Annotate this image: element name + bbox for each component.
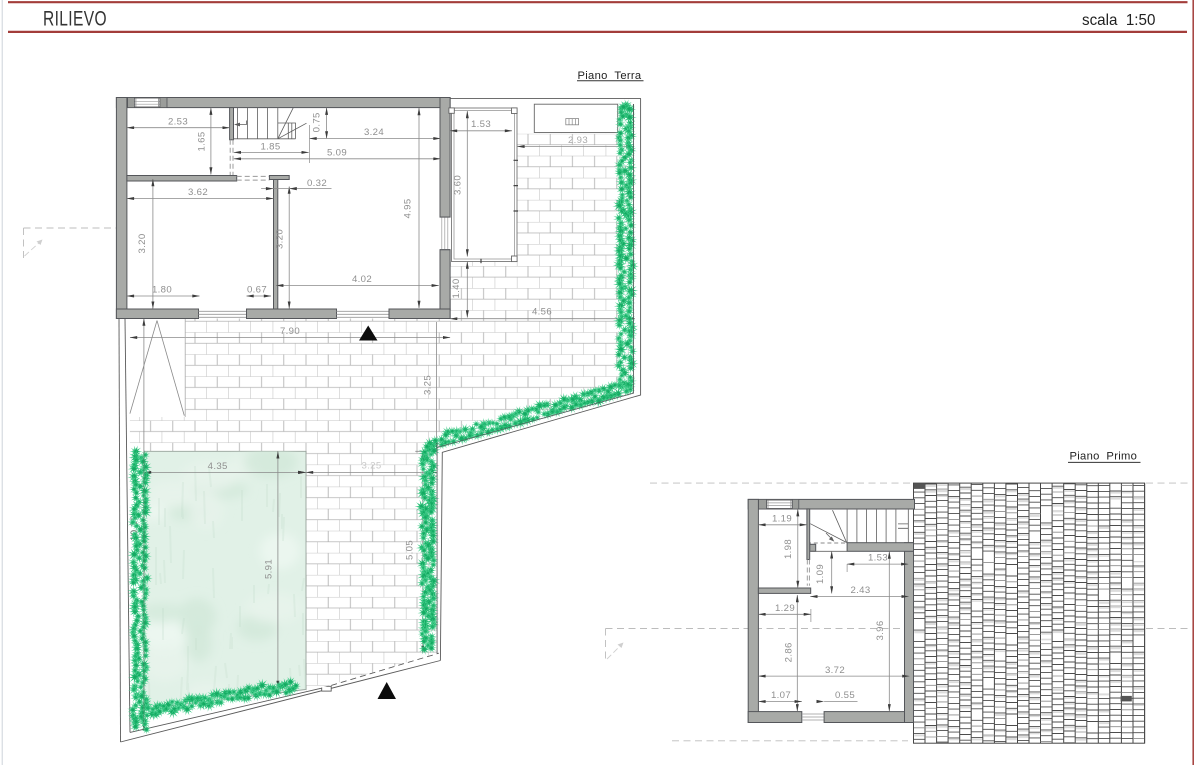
svg-text:scala 1:50: scala 1:50 [1082, 12, 1155, 29]
svg-text:Piano Primo: Piano Primo [1070, 450, 1138, 462]
svg-text:2.86: 2.86 [783, 642, 794, 662]
svg-text:1.80: 1.80 [152, 285, 172, 296]
svg-text:1.65: 1.65 [197, 131, 208, 151]
svg-text:3.62: 3.62 [188, 187, 208, 198]
svg-text:1.53: 1.53 [471, 119, 491, 130]
svg-text:3.20: 3.20 [137, 233, 148, 253]
svg-text:4.56: 4.56 [532, 307, 552, 318]
svg-text:1.07: 1.07 [771, 690, 791, 701]
svg-text:3.25: 3.25 [361, 460, 381, 471]
svg-text:3.72: 3.72 [825, 665, 845, 676]
svg-text:3.25: 3.25 [423, 375, 434, 395]
svg-text:1.98: 1.98 [783, 539, 794, 559]
svg-text:3.24: 3.24 [364, 127, 384, 138]
svg-text:5.91: 5.91 [264, 559, 275, 579]
svg-text:3.60: 3.60 [452, 175, 463, 195]
svg-text:1.19: 1.19 [772, 514, 792, 525]
svg-text:5.05: 5.05 [405, 540, 416, 560]
svg-text:4.02: 4.02 [352, 274, 372, 285]
svg-text:7.90: 7.90 [280, 326, 300, 337]
svg-text:1.53: 1.53 [868, 553, 888, 564]
svg-text:2.93: 2.93 [568, 135, 588, 146]
svg-text:1.09: 1.09 [815, 564, 826, 584]
svg-text:4.35: 4.35 [208, 461, 228, 472]
svg-text:2.43: 2.43 [850, 585, 870, 596]
svg-text:RILIEVO: RILIEVO [43, 6, 107, 30]
svg-text:4.95: 4.95 [403, 198, 414, 218]
svg-text:0.67: 0.67 [247, 285, 267, 296]
svg-text:0.75: 0.75 [312, 112, 323, 132]
svg-text:3.96: 3.96 [875, 620, 886, 640]
svg-text:0.55: 0.55 [835, 690, 855, 701]
svg-text:3.20: 3.20 [275, 229, 286, 249]
svg-text:5.09: 5.09 [327, 147, 347, 158]
svg-text:2.53: 2.53 [168, 116, 188, 127]
svg-text:0.32: 0.32 [307, 178, 327, 189]
svg-text:1.85: 1.85 [260, 141, 280, 152]
svg-text:1.40: 1.40 [451, 278, 462, 298]
svg-text:Piano Terra: Piano Terra [578, 70, 642, 82]
svg-text:1.29: 1.29 [775, 603, 795, 614]
